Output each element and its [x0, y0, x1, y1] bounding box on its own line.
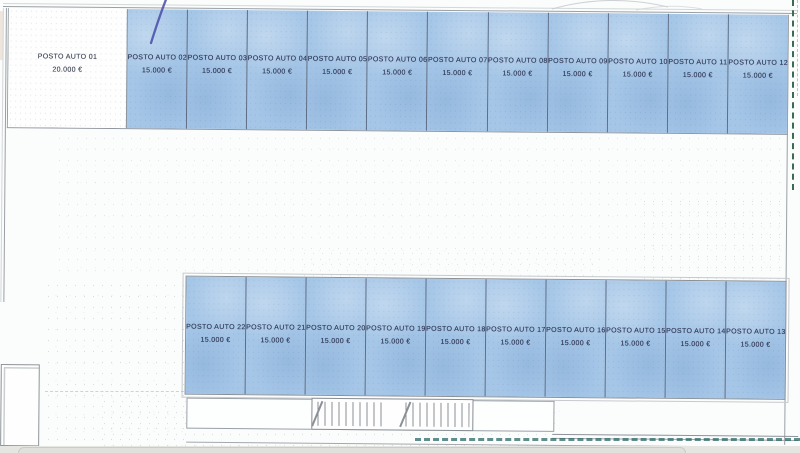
- parking-spot: POSTO AUTO 04 15.000 €: [246, 10, 307, 130]
- scanned-parking-floor-plan: POSTO AUTO 01 20.000 € POSTO AUTO 02 15.…: [0, 0, 800, 453]
- spot-price: 15.000 €: [608, 71, 667, 79]
- stair-shaft-wall: [0, 364, 40, 446]
- stair-treads: [405, 403, 469, 428]
- boundary-dashed-line-left: [45, 391, 189, 392]
- parking-spot: POSTO AUTO 09 15.000 €: [547, 13, 608, 133]
- spot-price: 15.000 €: [246, 337, 305, 345]
- spot-label: POSTO AUTO 14: [666, 328, 725, 336]
- spot-label: POSTO AUTO 22: [186, 324, 245, 332]
- parking-spot: POSTO AUTO 21 15.000 €: [245, 277, 306, 395]
- boundary-dashed-line-vertical: [792, 0, 794, 190]
- parking-spot: POSTO AUTO 05 15.000 €: [306, 11, 367, 131]
- spot-label: POSTO AUTO 07: [428, 57, 487, 65]
- parking-spot: POSTO AUTO 19 15.000 €: [365, 278, 426, 396]
- parking-spot: POSTO AUTO 14 15.000 €: [665, 281, 726, 399]
- spot-label: POSTO AUTO 19: [366, 325, 425, 333]
- parking-row-top: POSTO AUTO 01 20.000 € POSTO AUTO 02 15.…: [7, 8, 789, 135]
- spot-price: 15.000 €: [548, 71, 607, 79]
- parking-spot: POSTO AUTO 12 15.000 €: [727, 14, 788, 134]
- spot-label: POSTO AUTO 01: [8, 53, 126, 61]
- spot-price: 15.000 €: [666, 341, 725, 349]
- spot-label: POSTO AUTO 16: [546, 327, 605, 335]
- staircase: [311, 398, 473, 431]
- spot-price: 15.000 €: [127, 67, 186, 75]
- parking-spot: POSTO AUTO 22 15.000 €: [186, 277, 246, 395]
- spot-price: 15.000 €: [308, 69, 367, 77]
- spot-label: POSTO AUTO 12: [728, 59, 787, 67]
- parking-spot: POSTO AUTO 15 15.000 €: [605, 280, 666, 398]
- parking-row-bottom: POSTO AUTO 22 15.000 € POSTO AUTO 21 15.…: [185, 276, 787, 400]
- spot-price: 15.000 €: [546, 340, 605, 348]
- spot-price: 20.000 €: [8, 66, 126, 74]
- spot-label: POSTO AUTO 08: [488, 57, 547, 65]
- parking-spot: POSTO AUTO 17 15.000 €: [485, 279, 546, 397]
- spot-price: 15.000 €: [428, 70, 487, 78]
- spot-price: 15.000 €: [248, 68, 307, 76]
- spot-price: 15.000 €: [186, 337, 245, 345]
- spot-price: 15.000 €: [368, 69, 427, 77]
- spot-label: POSTO AUTO 21: [246, 324, 305, 332]
- parking-spot: POSTO AUTO 06 15.000 €: [366, 11, 427, 131]
- ramp-edge-line: [552, 434, 798, 437]
- parking-spot: POSTO AUTO 20 15.000 €: [305, 278, 366, 396]
- plan-border-left: [3, 8, 7, 302]
- parking-spot: POSTO AUTO 10 15.000 €: [607, 13, 668, 133]
- spot-price: 15.000 €: [187, 68, 246, 76]
- boundary-dashed-line-bottom: [415, 438, 800, 441]
- spot-label: POSTO AUTO 05: [308, 56, 367, 64]
- parking-row-bottom-cells: POSTO AUTO 22 15.000 € POSTO AUTO 21 15.…: [186, 277, 786, 399]
- parking-spot: POSTO AUTO 03 15.000 €: [186, 10, 247, 130]
- spot-price: 15.000 €: [426, 339, 485, 347]
- parking-spot: POSTO AUTO 02 15.000 €: [126, 9, 187, 129]
- spot-label: POSTO AUTO 02: [127, 54, 186, 62]
- spot-price: 15.000 €: [726, 341, 785, 349]
- spot-label: POSTO AUTO 04: [248, 55, 307, 63]
- spot-price: 15.000 €: [606, 340, 665, 348]
- parking-spot: POSTO AUTO 11 15.000 €: [667, 14, 728, 134]
- spot-price: 15.000 €: [668, 72, 727, 80]
- spot-price: 15.000 €: [366, 338, 425, 346]
- spot-price: 15.000 €: [306, 338, 365, 346]
- boundary-dashed-line-vertical-faint: [797, 0, 798, 96]
- parking-spot: POSTO AUTO 18 15.000 €: [425, 279, 486, 397]
- parking-spot: POSTO AUTO 16 15.000 €: [545, 280, 606, 398]
- spot-label: POSTO AUTO 17: [486, 326, 545, 334]
- spot-label: POSTO AUTO 15: [606, 327, 665, 335]
- spot-label: POSTO AUTO 13: [726, 328, 785, 336]
- spot-label: POSTO AUTO 09: [548, 58, 607, 66]
- spot-price: 15.000 €: [486, 339, 545, 347]
- stair-treads: [317, 402, 385, 427]
- spot-label: POSTO AUTO 18: [426, 326, 485, 334]
- spot-label: POSTO AUTO 03: [188, 55, 247, 63]
- spot-price: 15.000 €: [728, 72, 787, 80]
- parking-spot: POSTO AUTO 01 20.000 €: [8, 8, 127, 128]
- parking-spot: POSTO AUTO 13 15.000 €: [725, 281, 786, 399]
- spot-label: POSTO AUTO 11: [668, 59, 727, 67]
- spot-label: POSTO AUTO 10: [608, 58, 667, 66]
- spot-label: POSTO AUTO 20: [306, 325, 365, 333]
- parking-spot: POSTO AUTO 08 15.000 €: [486, 12, 547, 132]
- bottom-road-rounded-edge: [18, 447, 686, 453]
- spot-label: POSTO AUTO 06: [368, 56, 427, 64]
- parking-spot: POSTO AUTO 07 15.000 €: [426, 12, 487, 132]
- parking-row-top-cells: POSTO AUTO 01 20.000 € POSTO AUTO 02 15.…: [8, 8, 788, 134]
- plan-drawing: POSTO AUTO 01 20.000 € POSTO AUTO 02 15.…: [0, 0, 800, 453]
- spot-price: 15.000 €: [488, 70, 547, 78]
